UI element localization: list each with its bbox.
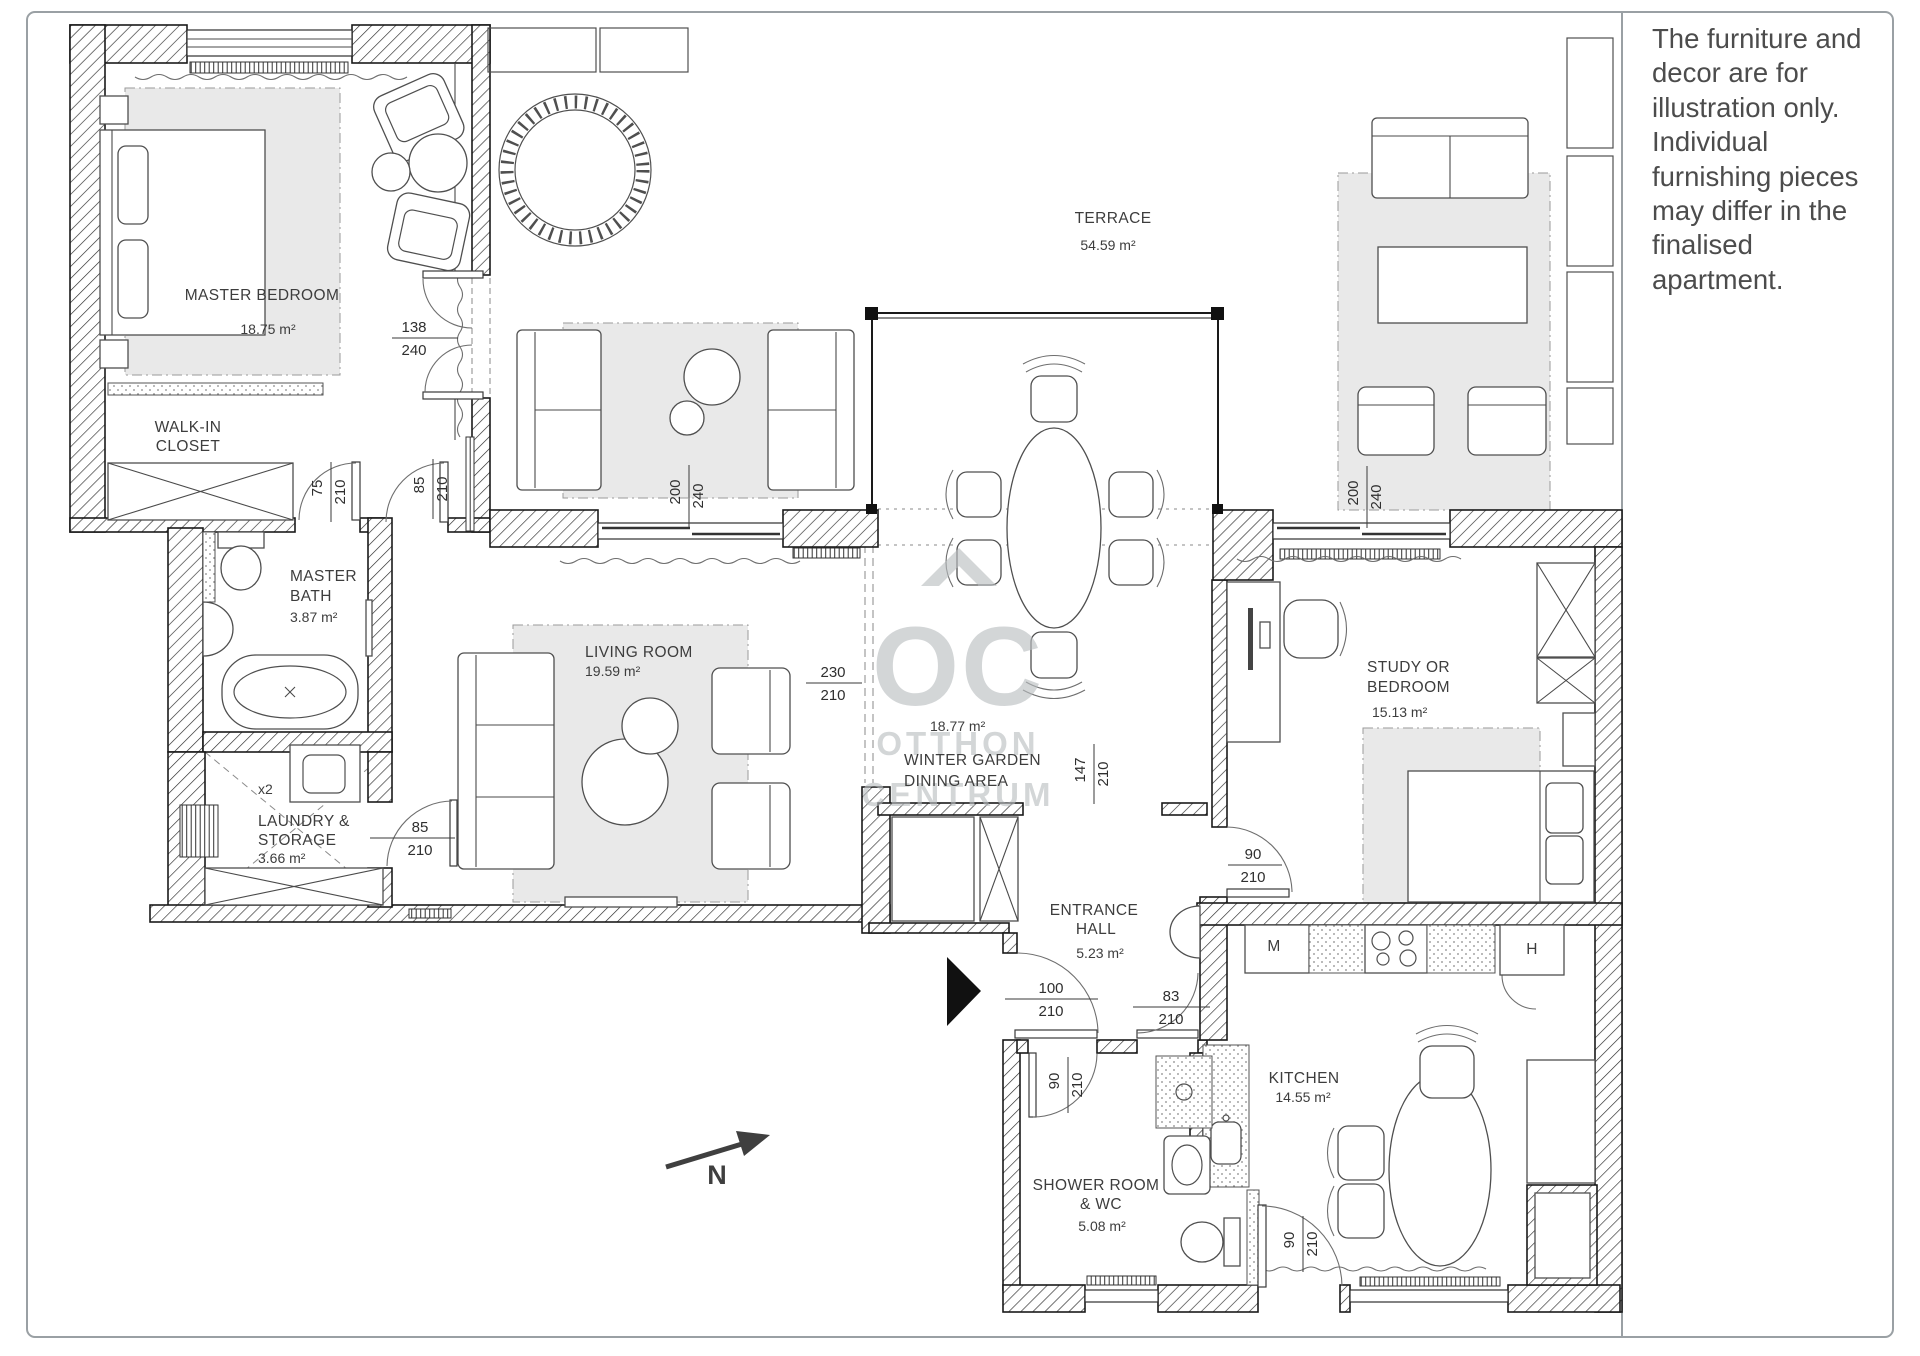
bedroom-radiator [190,62,348,73]
area-master-bedroom: 18.75 m² [240,321,296,337]
nightstand [100,96,128,124]
dim-shower-door: 90 210 [1046,1057,1086,1113]
kitchen-chair [1328,1126,1385,1180]
dining-chair [957,472,1001,517]
outdoor-table [670,401,704,435]
hall-closets [892,817,1018,921]
dining-chair [1109,540,1153,585]
office-chair [1284,600,1347,658]
label-washer-count: x2 [258,781,273,797]
svg-text:240: 240 [1368,484,1385,509]
dim-winter-garden-hall-opening: 147 210 [1072,744,1112,804]
hot-tub [499,94,651,246]
area-shower: 5.08 m² [1078,1218,1126,1234]
dim-kitchen-terrace-door: 90 210 [1281,1216,1321,1272]
svg-text:210: 210 [1158,1011,1183,1028]
svg-text:210: 210 [332,479,349,504]
hall-shelf [980,817,1018,921]
label-entrance-1: ENTRANCE [1050,902,1138,919]
label-study-2: BEDROOM [1367,679,1450,696]
closet-wardrobe-strip [108,383,323,395]
svg-text:210: 210 [434,476,451,501]
dim-study-door: 90 210 [1228,846,1282,886]
label-entrance-2: HALL [1076,921,1116,938]
study-window [1273,523,1450,559]
hall-niche [1170,906,1200,958]
toilet [218,532,264,590]
shower-window [1085,1276,1158,1302]
svg-text:240: 240 [690,483,707,508]
kitchen-table [1389,1074,1491,1266]
svg-text:83: 83 [1163,988,1180,1005]
dim-bedroom-terrace-door: 138 240 [392,319,458,359]
hall-closet [892,817,974,921]
label-terrace: TERRACE [1075,210,1152,227]
kitchen-window [1350,1277,1508,1302]
north-arrow-head [736,1131,770,1156]
svg-text:75: 75 [309,480,326,497]
area-master-bath: 3.87 m² [290,609,338,625]
disclaimer-text: The furniture and decor are for illustra… [1652,22,1888,297]
svg-text:210: 210 [1240,869,1265,886]
kitchen-chair [1328,1184,1385,1238]
kitchen-radiator [1360,1277,1500,1286]
washing-machine [180,805,218,857]
north-label: N [707,1160,727,1190]
shower-radiator [1087,1276,1156,1285]
label-shower-2: & WC [1080,1196,1122,1213]
kitchen-sink [1211,1115,1241,1164]
svg-text:210: 210 [820,687,845,704]
desk [1227,582,1280,742]
side-table [409,134,467,192]
outdoor-chair [1358,387,1434,455]
keyboard [1260,622,1270,648]
dining-chair [1031,376,1077,422]
dim-living-winter-garden-opening: 230 210 [806,664,862,704]
outdoor-table [684,349,740,405]
planter [1567,272,1613,382]
study-wardrobe [1537,563,1595,657]
area-living-room: 19.59 m² [585,663,641,679]
label-laundry-2: STORAGE [258,832,336,849]
bedroom-terrace-door [423,271,483,399]
outdoor-sofa [768,330,854,490]
bedroom-window [187,30,352,73]
dim-laundry-door: 85 210 [370,819,455,859]
area-laundry: 3.66 m² [258,850,306,866]
svg-text:200: 200 [667,479,684,504]
study-wardrobe [1537,658,1595,703]
svg-text:210: 210 [1038,1003,1063,1020]
label-study-1: STUDY OR [1367,659,1450,676]
nightstand [1563,713,1595,766]
outdoor-sofa [517,330,601,490]
living-radiator [793,548,860,558]
svg-text:100: 100 [1038,980,1063,997]
planter [1567,388,1613,444]
study-bed [1408,771,1594,902]
svg-text:210: 210 [407,842,432,859]
area-entrance: 5.23 m² [1076,945,1124,961]
hall-east-door [1137,973,1198,1038]
label-walk-in: WALK-IN [155,419,222,436]
washbasin [203,602,233,656]
bedroom-armchair [385,191,472,273]
dim-entrance-door: 100 210 [1005,980,1098,1020]
svg-text:147: 147 [1072,757,1089,782]
svg-text:210: 210 [1069,1072,1086,1097]
label-closet: CLOSET [156,438,221,455]
label-master-bath-2: BATH [290,588,332,605]
svg-text:90: 90 [1245,846,1262,863]
label-shower-1: SHOWER ROOM [1033,1177,1160,1194]
tv-bench [565,897,677,907]
shower-door [1029,1053,1097,1117]
armchair [712,668,790,754]
label-living-room: LIVING ROOM [585,644,693,661]
laundry-wardrobe [205,868,383,905]
monitor [1248,608,1253,670]
dim-hall-east-door: 83 210 [1133,988,1210,1028]
terrace-lounge-rug-right [1338,173,1550,510]
kitchen-terrace-door [1258,1205,1342,1287]
outdoor-sofa-right [1372,118,1528,198]
label-dishwasher: M [1267,938,1280,955]
area-winter-garden: 18.77 m² [930,718,986,734]
outdoor-coffee-table [1378,247,1527,323]
svg-text:90: 90 [1046,1073,1063,1090]
svg-text:85: 85 [412,819,429,836]
sofa [458,653,554,869]
counter [1309,925,1365,973]
toilet [1181,1218,1240,1266]
svg-text:210: 210 [1095,761,1112,786]
dining-table [1007,428,1101,628]
nightstand [100,340,128,368]
label-kitchen: KITCHEN [1269,1070,1340,1087]
walkin-wardrobe [108,463,293,520]
planter [1567,156,1613,266]
label-master-bedroom: MASTER BEDROOM [185,287,340,304]
towel-rail [366,600,372,656]
hob [1365,925,1427,973]
label-winter-garden-1: WINTER GARDEN [904,752,1041,769]
svg-text:90: 90 [1281,1232,1298,1249]
planter [1567,38,1613,148]
label-laundry-1: LAUNDRY & [258,813,350,830]
wc-partition [1247,1190,1259,1285]
svg-text:85: 85 [411,477,428,494]
area-kitchen: 14.55 m² [1275,1089,1331,1105]
bed [100,130,265,335]
svg-text:200: 200 [1345,480,1362,505]
bath-furring [203,532,215,602]
label-master-bath-1: MASTER [290,568,357,585]
armchair [712,783,790,869]
floor-plan-drawing: OC OTTHON CENTRUM MASTER BEDROOM 18.75 m… [0,0,1920,1356]
bathtub [222,655,358,729]
master-bath-fixtures [203,532,372,729]
kitchen-sideboard [1527,1060,1595,1183]
floor-plan-page: OC OTTHON CENTRUM MASTER BEDROOM 18.75 m… [0,0,1920,1356]
kitchen-pantry-box [1535,1193,1590,1278]
dim-bath-door: 75 210 [309,462,349,522]
entrance-marker-triangle [947,957,981,1026]
svg-text:230: 230 [820,664,845,681]
watermark-oc: OC [872,604,1044,729]
counter [1427,925,1495,973]
outdoor-chair [1468,387,1546,455]
svg-text:138: 138 [401,319,426,336]
area-terrace: 54.59 m² [1080,237,1136,253]
planter [488,28,596,72]
area-study: 15.13 m² [1372,704,1428,720]
label-winter-garden-2: DINING AREA [904,773,1009,790]
side-table [372,153,410,191]
kitchen-chair [1416,1026,1478,1099]
planter [600,28,688,72]
living-south-radiator [409,909,451,918]
dining-chair [1109,472,1153,517]
svg-text:210: 210 [1304,1231,1321,1256]
washbasin [1164,1136,1210,1194]
shower-tray [1156,1056,1212,1128]
label-fridge: H [1526,941,1538,958]
fridge-door-arc [1502,975,1536,1009]
svg-text:240: 240 [401,342,426,359]
laundry-sink [290,745,360,802]
coffee-table [622,698,678,754]
north-arrow: N [666,1131,770,1190]
nook-radiator [466,437,474,531]
